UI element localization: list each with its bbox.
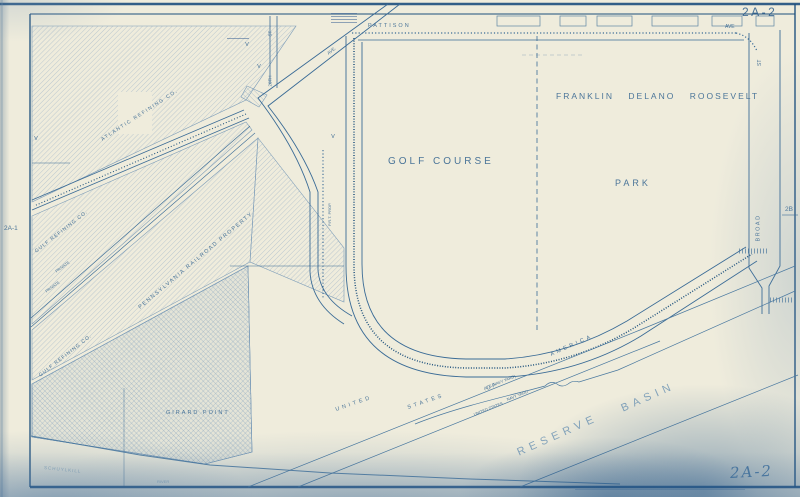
- survey-mark-v-1: V: [245, 42, 249, 48]
- area-label-park: PARK: [615, 179, 651, 188]
- adjacent-sheet-right: 2B: [785, 207, 793, 214]
- hatched-parcels: [32, 26, 344, 464]
- footer-microtext-illegible: [575, 489, 745, 490]
- adjacent-sheet-left: 2A-1: [4, 226, 18, 233]
- blueprint-map-sheet: 2A-2 2A-2 2A-1 2B PATTISON AVE ST BROAD …: [0, 0, 800, 497]
- map-linework: [0, 0, 800, 497]
- city-blocks: [497, 16, 774, 55]
- survey-mark-v-3: V: [331, 134, 335, 140]
- street-label-20th-st: ST: [269, 31, 274, 37]
- area-label-golf-course: GOLF COURSE: [388, 157, 494, 167]
- margin-note-illegible-2: [227, 38, 249, 39]
- margin-note-illegible-1: [331, 13, 357, 23]
- sheet-number-bottom-handwritten: 2A-2: [730, 464, 774, 481]
- street-label-st-top-right: ST: [758, 60, 763, 66]
- street-label-pattison: PATTISON: [368, 24, 411, 30]
- street-label-pattison-ave: AVE: [725, 25, 735, 30]
- survey-mark-v-2: V: [257, 64, 261, 70]
- sheet-number-top: 2A-2: [742, 6, 777, 18]
- street-label-broad: BROAD: [757, 214, 763, 241]
- area-label-fdr-park: FRANKLIN DELANO ROOSEVELT: [556, 92, 759, 101]
- street-label-20th: 20TH: [269, 75, 274, 86]
- owner-label-prt-prop: P.R.T. PROP.: [328, 203, 332, 226]
- water-label-river: RIVER: [157, 480, 169, 484]
- area-label-girard-point: GIRARD POINT: [166, 411, 230, 417]
- survey-mark-v-4: V: [34, 136, 38, 142]
